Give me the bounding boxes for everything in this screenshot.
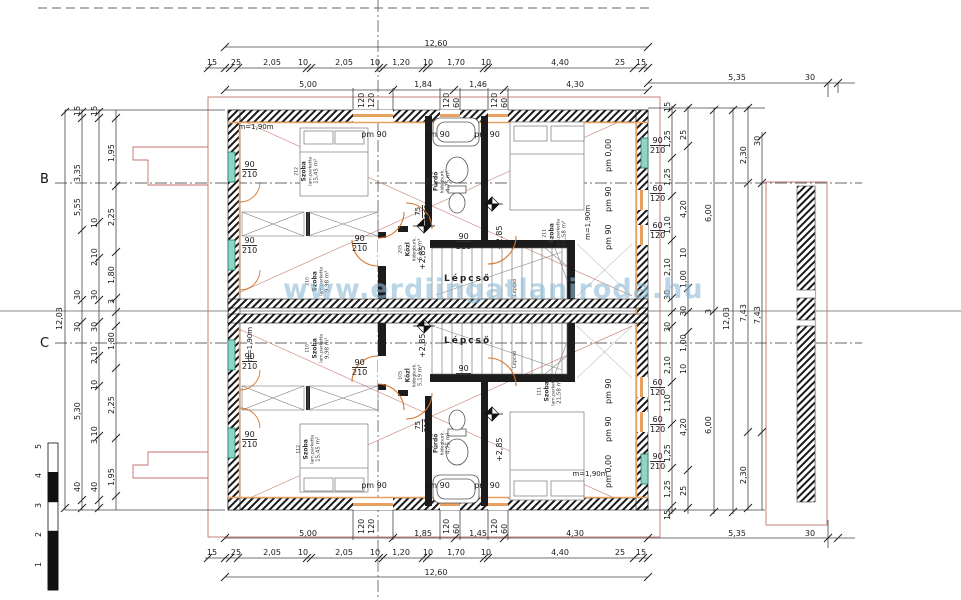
- scalebar-number: 4: [34, 473, 43, 478]
- dim-label: 4,40: [551, 58, 569, 67]
- window-size-label: 120: [490, 93, 499, 108]
- parapet-label: pm 90: [474, 481, 500, 490]
- scale-bar: [48, 443, 58, 590]
- window-size-label: 120: [490, 519, 499, 534]
- dim-label: 2,30: [739, 466, 748, 484]
- dim-label: 1,70: [447, 58, 465, 67]
- dim-label: 30: [679, 306, 688, 316]
- door-size-label: 90210: [456, 232, 471, 251]
- dim-label: 30: [663, 322, 672, 332]
- dim-label: 4,40: [551, 548, 569, 557]
- dim-label: 25: [615, 548, 625, 557]
- dim-label: 25: [231, 58, 241, 67]
- dim-label: 2,05: [335, 58, 353, 67]
- watermark: www.erdiingatlaniroda.hu: [283, 274, 704, 305]
- window-size-label: 120: [357, 93, 366, 108]
- headroom-label: m=1,90m: [246, 327, 254, 362]
- window-size-label: 90210: [242, 160, 257, 179]
- dim-label: 5,30: [73, 402, 82, 420]
- dim-label: 7,43: [739, 304, 748, 322]
- dim-label: 6,00: [704, 204, 713, 222]
- dim-label: 1,46: [469, 80, 487, 89]
- window-size-label: 60: [500, 98, 509, 108]
- room-label-211: 211Szobalam.parketta21,58 m²: [543, 198, 570, 268]
- parapet-label: pm 90: [474, 130, 500, 139]
- dim-label: 1,85: [414, 529, 432, 538]
- dim-label: 10: [423, 548, 433, 557]
- dim-total-width-bottom: 12,60: [425, 568, 448, 577]
- dim-label: 4,20: [679, 200, 688, 218]
- dim-label: 30: [73, 290, 82, 300]
- window-size-label: 90210: [650, 452, 665, 471]
- window-size-label: 120: [367, 93, 376, 108]
- dim-label: 25: [231, 548, 241, 557]
- dim-label: 25: [679, 130, 688, 140]
- dim-label: 5,35: [728, 529, 746, 538]
- dim-label: 1,95: [107, 468, 116, 486]
- dim-label: 30: [753, 136, 762, 146]
- dim-label: 30: [805, 529, 815, 538]
- dim-label: 30: [805, 73, 815, 82]
- scalebar-number: 2: [34, 532, 43, 537]
- dim-label: 7,43: [753, 306, 762, 324]
- dim-label: 15: [636, 58, 646, 67]
- dim-label: 10: [90, 380, 99, 390]
- dim-label: 3: [704, 309, 713, 314]
- axis-label-c: C: [40, 336, 49, 351]
- dim-label: 30: [90, 322, 99, 332]
- parapet-label: pm 90: [424, 130, 450, 139]
- stair-label-small: Lépcső: [512, 351, 518, 368]
- dim-label: 3,10: [90, 426, 99, 444]
- dim-label: 15: [73, 106, 82, 116]
- dim-label: 15: [207, 58, 217, 67]
- dim-label: 4,20: [679, 418, 688, 436]
- dim-total-height-left: 12,03: [55, 307, 64, 330]
- parapet-label: pm 90: [424, 481, 450, 490]
- dim-label: 3,35: [73, 164, 82, 182]
- dim-label: 1,00: [679, 334, 688, 352]
- dim-label: 2,10: [90, 346, 99, 364]
- dim-label: 1,80: [107, 266, 116, 284]
- dim-label: 30: [73, 322, 82, 332]
- window-size-label: 120: [367, 519, 376, 534]
- dim-label: 4,30: [566, 80, 584, 89]
- headroom-label: m=1,90m: [572, 470, 607, 478]
- window-size-label: 60120: [650, 184, 665, 203]
- room-label-206: 206Fürdőhidegburk.4,75 m²: [427, 146, 454, 216]
- neighbor-wall: [797, 186, 816, 502]
- dim-label: 2,05: [335, 548, 353, 557]
- headroom-label: m=1,90m: [584, 205, 592, 240]
- dim-label: 15: [663, 102, 672, 112]
- dim-label: 25: [615, 58, 625, 67]
- parapet-label: pm 90: [604, 186, 613, 212]
- dim-label: 6,00: [704, 416, 713, 434]
- window-size-label: 90210: [242, 236, 257, 255]
- level-markers: [413, 197, 503, 421]
- room-label-110: 110Szobalam.parketta9,98 m²: [306, 313, 333, 383]
- parapet-label: pm 0,00: [604, 139, 613, 172]
- headroom-label: m=1,90m: [238, 123, 273, 131]
- axis-label-b: B: [40, 172, 49, 187]
- parapet-label: pm 90: [604, 378, 613, 404]
- dim-label: 5,55: [73, 198, 82, 216]
- parapet-label: pm 90: [361, 481, 387, 490]
- window-size-label: 60120: [650, 221, 665, 240]
- dim-label: 15: [636, 548, 646, 557]
- dim-label: 10: [679, 248, 688, 258]
- dim-label: 15: [663, 510, 672, 520]
- dim-label: 1,20: [392, 548, 410, 557]
- window-size-label: 60: [452, 98, 461, 108]
- door-size-label: 90210: [352, 234, 367, 253]
- floorplan-drawing: www.erdiingatlaniroda.hu B C 12,60 15 25…: [0, 0, 961, 600]
- dim-label: 10: [370, 548, 380, 557]
- window-size-label: 60: [452, 524, 461, 534]
- window-size-label: 60120: [650, 415, 665, 434]
- dim-label: 2,10: [663, 356, 672, 374]
- dim-label: 10: [423, 58, 433, 67]
- scalebar-number: 1: [34, 562, 43, 567]
- room-label-111: 111Szobalam.parketta21,58 m²: [538, 356, 565, 426]
- dim-label: 1,95: [107, 144, 116, 162]
- dim-label: 10: [298, 548, 308, 557]
- door-size-label: 90210: [352, 358, 367, 377]
- room-label-105: 105Közlhidegburk.5,19 m²: [399, 340, 426, 410]
- dim-label: 2,25: [107, 208, 116, 226]
- level-marker-text: +2,85: [495, 225, 504, 250]
- window-size-label: 120: [442, 519, 451, 534]
- dim-label: 40: [90, 482, 99, 492]
- dim-label: 1,84: [414, 80, 432, 89]
- dim-label: 2,25: [107, 396, 116, 414]
- window-size-label: 90210: [650, 136, 665, 155]
- scalebar-number: 5: [34, 444, 43, 449]
- room-label-112: 112Szobalam.parketta15,45 m²: [297, 414, 324, 484]
- parapet-label: pm 90: [604, 416, 613, 442]
- dim-label: 25: [679, 486, 688, 496]
- dim-label: 1,70: [447, 548, 465, 557]
- room-label-212: 212Szobalam.parketta15,45 m²: [295, 136, 322, 206]
- dim-label: 1,80: [107, 332, 116, 350]
- dim-label: 5,35: [728, 73, 746, 82]
- dim-label: 15: [207, 548, 217, 557]
- scalebar-number: 3: [34, 503, 43, 508]
- dim-label: 10: [481, 58, 491, 67]
- dim-label: 3: [107, 299, 116, 304]
- dim-label: 5,00: [299, 80, 317, 89]
- window-size-label: 60120: [650, 378, 665, 397]
- window-size-label: 120: [442, 93, 451, 108]
- parapet-label: pm 90: [604, 224, 613, 250]
- dim-label: 2,05: [263, 58, 281, 67]
- dim-label: 2,10: [90, 248, 99, 266]
- dim-label: 5,00: [299, 529, 317, 538]
- dim-label: 30: [90, 290, 99, 300]
- door-size-label: 90210: [456, 364, 471, 383]
- window-size-label: 60: [500, 524, 509, 534]
- dim-label: 2,30: [739, 146, 748, 164]
- dim-label: 1,20: [392, 58, 410, 67]
- dim-total-width-top: 12,60: [425, 39, 448, 48]
- dim-label: 10: [370, 58, 380, 67]
- dim-label: 1,25: [663, 480, 672, 498]
- dim-label: 10: [90, 218, 99, 228]
- room-label-106: 106Fürdőhidegburk.4,75 m²: [427, 408, 454, 478]
- window-size-label: 120: [357, 519, 366, 534]
- dim-label: 2,05: [263, 548, 281, 557]
- dim-label: 10: [481, 548, 491, 557]
- dim-label: 15: [90, 106, 99, 116]
- level-marker-text: +2,85: [495, 437, 504, 462]
- stair-label-lower: Lépcső: [444, 336, 491, 346]
- dim-label: 4,30: [566, 529, 584, 538]
- dim-label: 40: [73, 482, 82, 492]
- dim-label: 1,45: [469, 529, 487, 538]
- dim-label: 10: [298, 58, 308, 67]
- dim-total-height-right: 12,03: [722, 307, 731, 330]
- parapet-label: pm 90: [361, 130, 387, 139]
- dim-label: 10: [679, 364, 688, 374]
- window-size-label: 90210: [242, 430, 257, 449]
